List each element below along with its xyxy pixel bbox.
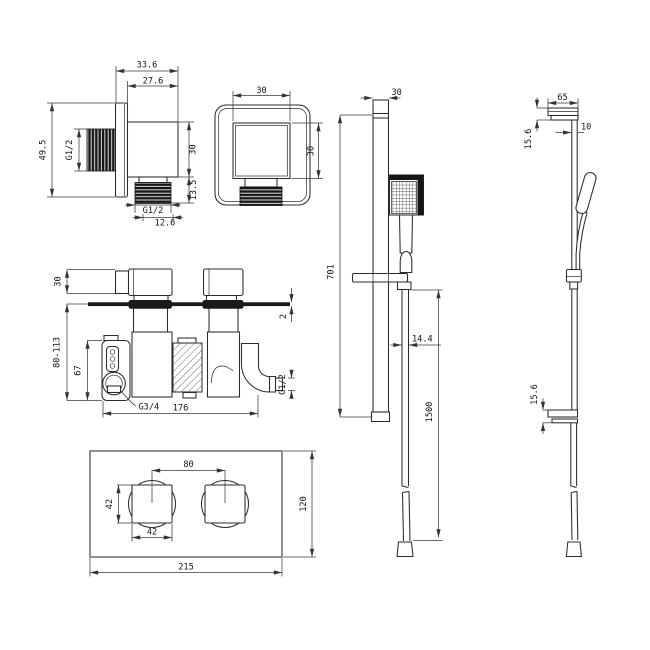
dim-handle-width: 42 (147, 528, 157, 538)
dim-rail-depth: 10 (581, 123, 591, 133)
valve-handle-lever (116, 271, 129, 294)
inlet-thread-hatch (87, 129, 116, 171)
dim-inlet-thread: G3/4 (139, 403, 160, 413)
dim-bracket-bottom-height: 15.6 (530, 384, 540, 405)
view-outlet-side: 33.6 27.6 49.5 G1/2 30 13.5 G1/2 12.6 (39, 61, 200, 229)
dim-plate-height: 120 (299, 496, 309, 512)
dim-plate-width: 215 (178, 563, 194, 573)
valve-outlet-elbow (242, 344, 276, 393)
dim-plate-thickness: 2 (279, 314, 289, 319)
valve-bracket-hatch (173, 343, 202, 392)
view-valve: 30 80-113 67 2 G1/2 G3/4 176 (53, 269, 296, 418)
view-rail-side: 65 15.6 10 15.6 (524, 93, 597, 557)
rail-slider-side (567, 270, 582, 283)
dim-install-depth: 80-113 (53, 337, 63, 368)
rail-bottom-bracket (548, 410, 578, 417)
valve-wall-plate-edge (88, 302, 290, 306)
outlet-front-thread (240, 187, 282, 206)
dim-bracket-top-height: 15.6 (524, 129, 534, 150)
handset-handle (400, 215, 413, 253)
hose-connector (397, 542, 413, 557)
dim-overall-width: 33.6 (137, 61, 158, 71)
dim-flange-height: 49.5 (39, 140, 49, 161)
dim-handle-depth: 30 (54, 276, 64, 286)
dim-hose-length: 1500 (425, 402, 435, 423)
valve-handle-2 (204, 269, 244, 296)
hose-nut (398, 282, 412, 290)
valve-cartridge-1 (132, 332, 172, 397)
dim-inlet-thread: G1/2 (65, 140, 75, 161)
dim-hose-diameter: 14.4 (412, 335, 433, 345)
outlet-neck (139, 177, 167, 183)
dim-thread-length: 13.5 (189, 180, 199, 201)
dim-outlet-thread: G1/2 (143, 206, 164, 216)
dim-face-height: 30 (307, 146, 317, 156)
dim-rail-width: 30 (392, 88, 402, 98)
dim-body-width: 176 (173, 404, 189, 414)
outlet-body (128, 122, 179, 177)
dim-outlet-core: 12.6 (155, 219, 176, 229)
dim-body-height: 30 (189, 144, 199, 154)
dim-face-width: 30 (256, 86, 266, 96)
handset-side-head (575, 171, 598, 215)
slide-rail (373, 100, 389, 412)
dim-handle-spacing: 80 (183, 460, 193, 470)
dim-rail-length: 701 (327, 264, 337, 280)
dim-outlet-thread: G1/2 (278, 374, 288, 395)
outlet-flange (116, 103, 128, 197)
view-trim-plate: 80 42 42 120 215 (90, 451, 316, 577)
handset-side-handle (576, 211, 587, 270)
valve-cartridge-2 (208, 332, 240, 397)
technical-drawing-page: 33.6 27.6 49.5 G1/2 30 13.5 G1/2 12.6 (0, 0, 650, 650)
dim-handle-height: 42 (105, 499, 115, 509)
handset-spray-face (392, 182, 417, 214)
outlet-thread-hatch (135, 183, 171, 204)
hose-connector-side (566, 542, 581, 557)
view-outlet-front: 30 30 (215, 86, 323, 206)
shower-set-technical-drawing: 33.6 27.6 49.5 G1/2 30 13.5 G1/2 12.6 (0, 0, 650, 650)
dim-bracket-length: 65 (557, 93, 567, 103)
outlet-face (233, 123, 290, 179)
rail-slider-bracket (353, 274, 408, 283)
view-rail-front: 30 701 14.4 1500 (327, 88, 443, 557)
dim-body-width: 27.6 (143, 77, 164, 87)
dim-body-height: 67 (74, 365, 84, 375)
valve-handle-1 (129, 269, 173, 296)
